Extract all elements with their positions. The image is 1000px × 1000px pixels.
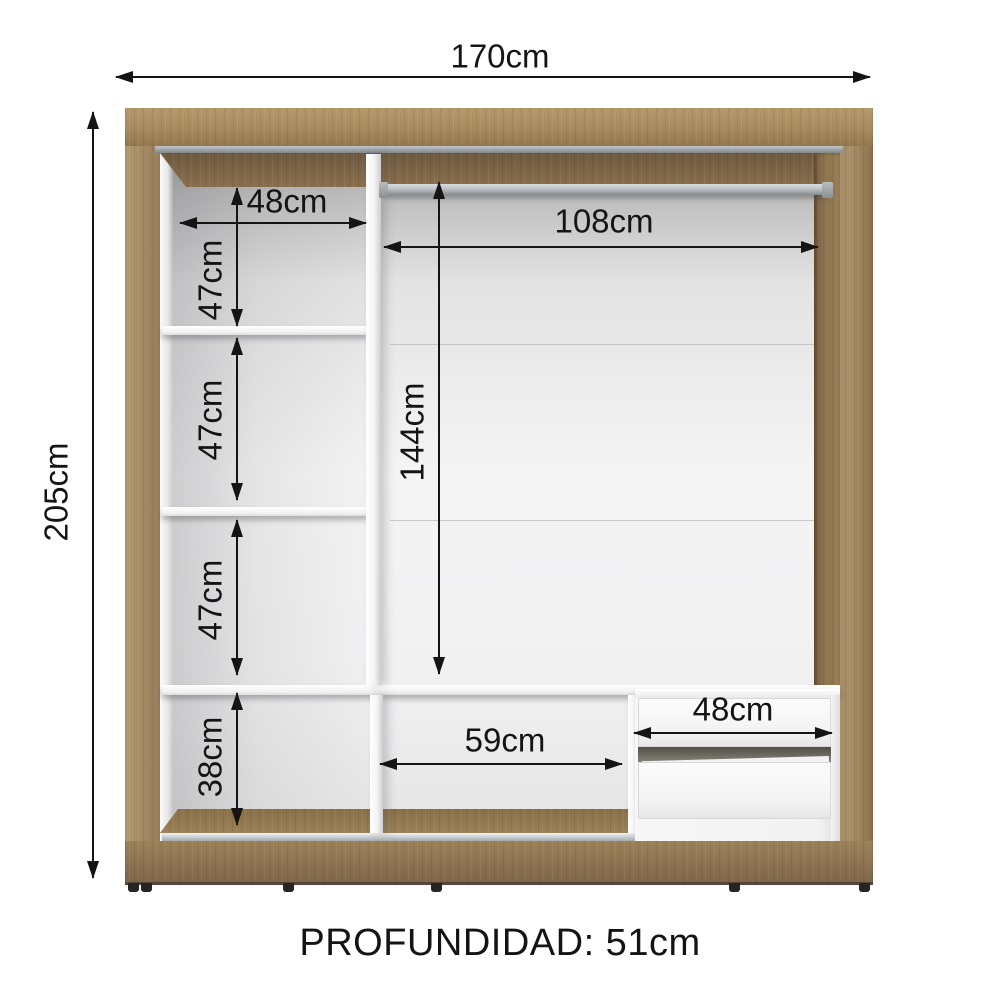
left-side-wall [160,153,173,841]
vertical-divider-upper [366,154,381,685]
wardrobe-dimension-diagram: 170cm 205cm 48cm 47cm 47cm 47cm 38cm 108… [0,0,1000,1000]
dim-arrow-left-gap-middle [236,338,238,500]
dim-label-left-column-width: 48cm [247,185,328,218]
dim-arrow-base-left-height [236,693,238,825]
back-panel-seam [390,344,814,345]
dim-label-total-height: 205cm [40,442,73,541]
dim-arrow-left-gap-bottom [236,520,238,675]
shelf-top [162,326,368,335]
plinth-panel [125,841,873,885]
sliding-door-track-top [155,146,843,153]
dim-label-total-width: 170cm [450,40,549,73]
foot [859,883,870,892]
dim-arrow-hanging-height [438,182,440,674]
rod-bracket-left [379,182,388,198]
foot [283,883,294,892]
foot [141,883,152,892]
dim-label-hanging-width: 108cm [554,205,653,238]
dim-label-left-gap-middle: 47cm [194,380,227,461]
foot [431,883,442,892]
dim-arrow-total-width [116,76,870,78]
depth-caption: PROFUNDIDAD: 51cm [0,922,1000,965]
dim-arrow-hanging-width [384,246,818,248]
drawer-open-gap [638,747,831,762]
dim-label-drawer-width: 48cm [693,693,774,726]
dim-arrow-left-gap-top [236,188,238,326]
hanging-rod [383,184,828,195]
dim-arrow-total-height [92,112,94,878]
dim-label-hanging-height: 144cm [396,382,429,481]
dim-label-base-middle-width: 59cm [465,724,546,757]
dim-label-left-gap-bottom: 47cm [194,560,227,641]
dim-label-left-gap-top: 47cm [194,240,227,321]
rod-bracket-right [822,182,833,198]
shelf-middle [162,507,368,516]
dim-arrow-base-middle-width [380,763,622,765]
foot [128,883,139,892]
foot [729,883,740,892]
drawer-unit-right-panel [831,695,840,841]
drawer-lower-open [638,762,831,819]
dim-label-base-left-height: 38cm [194,717,227,798]
dim-arrow-drawer-width [634,732,832,734]
back-panel-seam [390,520,814,521]
dim-arrow-left-column-width [180,222,366,224]
top-panel [125,108,873,146]
